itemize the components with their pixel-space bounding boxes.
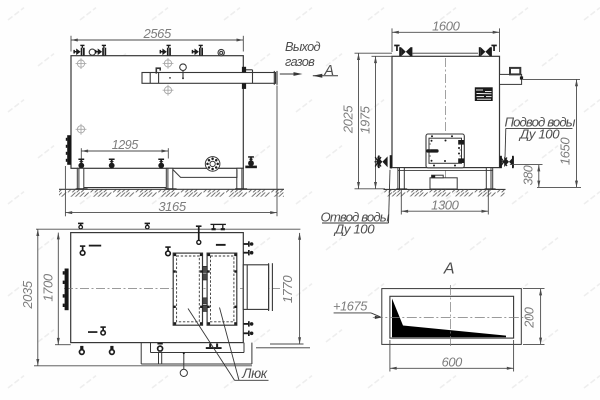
svg-text:1600: 1600 bbox=[432, 19, 460, 34]
svg-text:A: A bbox=[323, 63, 333, 79]
svg-text:1650: 1650 bbox=[558, 137, 573, 165]
svg-text:2035: 2035 bbox=[20, 280, 35, 309]
svg-text:1300: 1300 bbox=[431, 197, 459, 212]
svg-text:+1675: +1675 bbox=[333, 299, 368, 314]
svg-text:200: 200 bbox=[521, 306, 536, 328]
svg-text:A: A bbox=[443, 261, 454, 278]
svg-text:Выход: Выход bbox=[285, 39, 321, 54]
svg-text:2025: 2025 bbox=[340, 105, 355, 134]
svg-text:1295: 1295 bbox=[112, 138, 139, 152]
svg-text:3165: 3165 bbox=[158, 199, 186, 214]
svg-text:1770: 1770 bbox=[280, 275, 295, 303]
svg-text:380: 380 bbox=[522, 165, 536, 185]
svg-text:1975: 1975 bbox=[358, 105, 373, 133]
svg-text:2565: 2565 bbox=[142, 26, 171, 41]
svg-text:1700: 1700 bbox=[40, 273, 55, 301]
svg-text:Ду 100: Ду 100 bbox=[333, 221, 375, 236]
svg-text:Люк: Люк bbox=[241, 366, 267, 381]
svg-text:газов: газов bbox=[285, 54, 315, 69]
svg-text:600: 600 bbox=[442, 354, 463, 369]
